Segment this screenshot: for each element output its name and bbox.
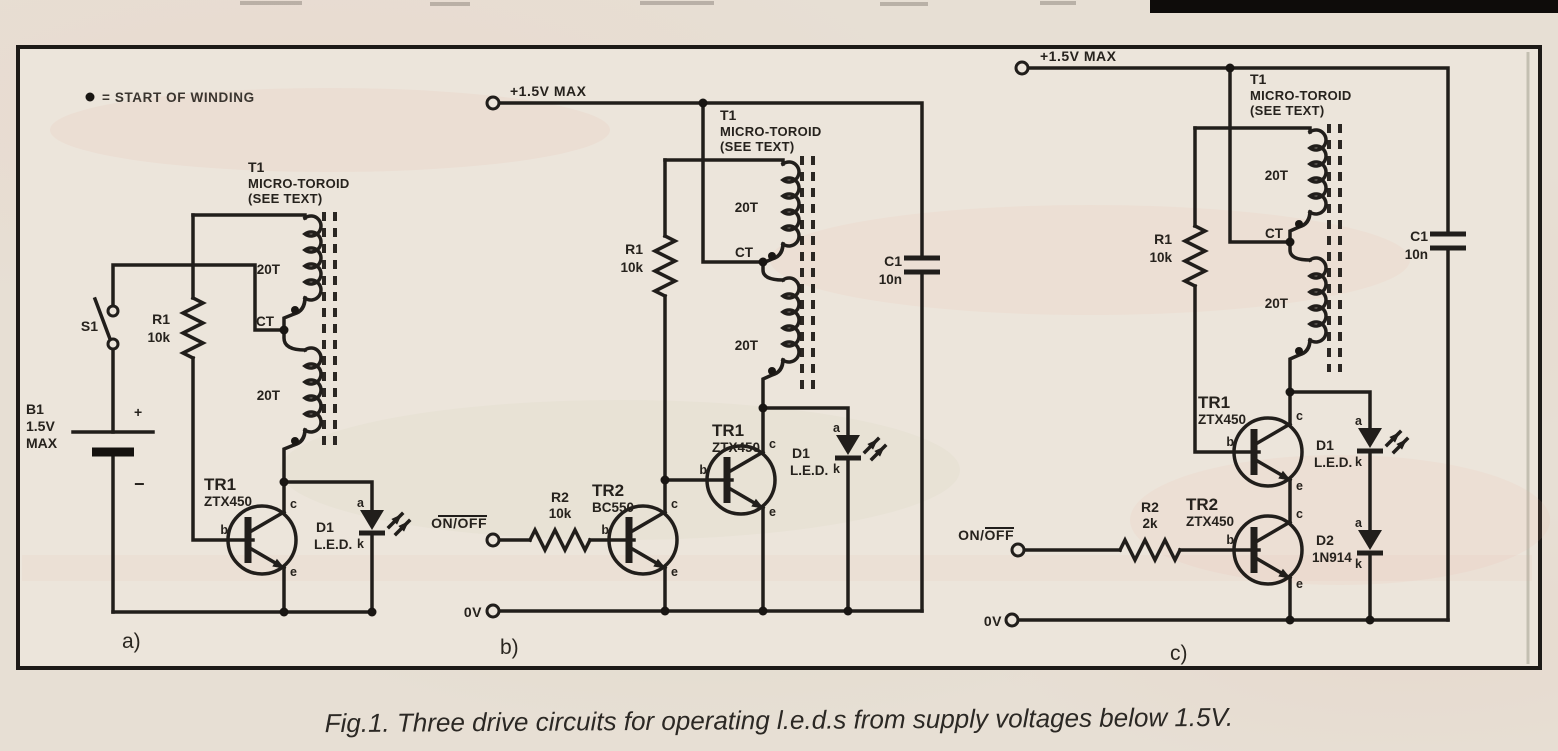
terminal-icon <box>487 534 499 546</box>
led-ref: D1 <box>792 445 810 461</box>
capacitor-ref: C1 <box>884 253 902 269</box>
transformer-note: (SEE TEXT) <box>720 139 795 154</box>
winding-start-dot-icon <box>86 93 95 102</box>
pin-e: e <box>1296 479 1303 493</box>
pin-c: c <box>769 437 776 451</box>
terminal-icon <box>1012 544 1024 556</box>
winding-start-dot <box>768 252 776 260</box>
schematic-figure: = START OF WINDING B1 1.5V MAX + − <box>0 0 1558 751</box>
pin-a: a <box>357 496 365 510</box>
supply-label: +1.5V MAX <box>510 83 587 99</box>
gnd-label: 0V <box>464 604 482 620</box>
turns-bottom: 20T <box>735 338 759 353</box>
led-part: L.E.D. <box>1314 455 1352 470</box>
resistor-ref: R1 <box>625 241 643 257</box>
pin-e: e <box>1296 577 1303 591</box>
center-tap: CT <box>256 314 275 329</box>
capacitor-ref: C1 <box>1410 228 1428 244</box>
turns-bottom: 20T <box>257 388 281 403</box>
center-tap: CT <box>1265 226 1284 241</box>
winding-start-dot <box>291 306 299 314</box>
pin-e: e <box>769 505 776 519</box>
pin-c: c <box>1296 507 1303 521</box>
transistor-ref: TR1 <box>712 421 744 440</box>
figure-caption: Fig.1. Three drive circuits for operatin… <box>325 702 1234 738</box>
capacitor-value: 10n <box>879 272 902 287</box>
battery-value: 1.5V <box>26 418 55 434</box>
gnd-terminal-b: 0V <box>464 604 499 620</box>
scan-noise-marks <box>240 1 1076 6</box>
transformer-name: MICRO-TOROID <box>720 124 822 139</box>
led-part: L.E.D. <box>790 463 828 478</box>
transistor-part: BC550 <box>592 500 634 515</box>
page-header-bar <box>1150 0 1558 13</box>
switch-ref: S1 <box>81 318 98 334</box>
resistor-ref: R1 <box>1154 231 1172 247</box>
scanned-magazine-figure: = START OF WINDING B1 1.5V MAX + − <box>0 0 1558 751</box>
pin-a: a <box>1355 414 1363 428</box>
turns-top: 20T <box>1265 168 1289 183</box>
pin-a: a <box>1355 516 1363 530</box>
transformer-ref: T1 <box>248 159 265 175</box>
resistor-value: 10k <box>1149 250 1172 265</box>
pin-k: k <box>357 537 364 551</box>
transistor-part: ZTX450 <box>712 440 760 455</box>
pin-k: k <box>1355 557 1362 571</box>
transistor-part: ZTX450 <box>204 494 252 509</box>
gnd-label: 0V <box>984 613 1002 629</box>
led-part: L.E.D. <box>314 537 352 552</box>
pin-e: e <box>671 565 678 579</box>
battery-max: MAX <box>26 435 58 451</box>
pin-b: b <box>699 463 707 477</box>
pin-b: b <box>601 523 609 537</box>
pin-c: c <box>290 497 297 511</box>
supply-label: +1.5V MAX <box>1040 48 1117 64</box>
diode-part: 1N914 <box>1312 550 1352 565</box>
transformer-note: (SEE TEXT) <box>248 191 323 206</box>
center-tap: CT <box>735 245 754 260</box>
transistor-part: ZTX450 <box>1198 412 1246 427</box>
terminal-icon <box>487 97 499 109</box>
pin-k: k <box>833 462 840 476</box>
led-ref: D1 <box>316 519 334 535</box>
led-ref: D1 <box>1316 437 1334 453</box>
transistor-ref: TR1 <box>1198 393 1230 412</box>
transformer-ref: T1 <box>720 107 737 123</box>
legend-start-of-winding: = START OF WINDING <box>86 90 255 105</box>
transformer-name: MICRO-TOROID <box>1250 88 1352 103</box>
gnd-terminal-c: 0V <box>984 613 1018 629</box>
pin-b: b <box>220 523 228 537</box>
terminal-icon <box>1016 62 1028 74</box>
resistor-ref: R2 <box>1141 499 1159 515</box>
winding-start-dot <box>768 367 776 375</box>
resistor-ref: R1 <box>152 311 170 327</box>
transformer-ref: T1 <box>1250 71 1267 87</box>
onoff-label: ON/OFF <box>431 515 487 531</box>
pin-c: c <box>1296 409 1303 423</box>
turns-top: 20T <box>735 200 759 215</box>
terminal-icon <box>1006 614 1018 626</box>
terminal-icon <box>487 605 499 617</box>
pin-b: b <box>1226 533 1234 547</box>
resistor-ref: R2 <box>551 489 569 505</box>
capacitor-value: 10n <box>1405 247 1428 262</box>
pin-c: c <box>671 497 678 511</box>
legend-text: = START OF WINDING <box>102 90 255 105</box>
transformer-note: (SEE TEXT) <box>1250 103 1325 118</box>
battery-plus-sign: + <box>134 404 142 420</box>
transistor-ref: TR2 <box>592 481 624 500</box>
transistor-ref: TR2 <box>1186 495 1218 514</box>
pin-a: a <box>833 421 841 435</box>
circuit-letter-c: c) <box>1170 642 1188 665</box>
resistor-value: 10k <box>147 330 170 345</box>
turns-bottom: 20T <box>1265 296 1289 311</box>
winding-start-dot <box>1295 347 1303 355</box>
pin-e: e <box>290 565 297 579</box>
circuit-letter-b: b) <box>500 636 519 659</box>
transistor-ref: TR1 <box>204 475 236 494</box>
circuit-letter-a: a) <box>122 630 141 653</box>
diode-ref: D2 <box>1316 532 1334 548</box>
resistor-value: 10k <box>620 260 643 275</box>
transformer-name: MICRO-TOROID <box>248 176 350 191</box>
turns-top: 20T <box>257 262 281 277</box>
transistor-part: ZTX450 <box>1186 514 1234 529</box>
resistor-value: 10k <box>549 506 572 521</box>
pin-k: k <box>1355 455 1362 469</box>
winding-start-dot <box>1295 220 1303 228</box>
pin-b: b <box>1226 435 1234 449</box>
onoff-label: ON/OFF <box>958 527 1014 543</box>
winding-start-dot <box>291 437 299 445</box>
battery-minus-sign: − <box>134 474 145 494</box>
battery-ref: B1 <box>26 401 44 417</box>
resistor-value: 2k <box>1142 516 1158 531</box>
